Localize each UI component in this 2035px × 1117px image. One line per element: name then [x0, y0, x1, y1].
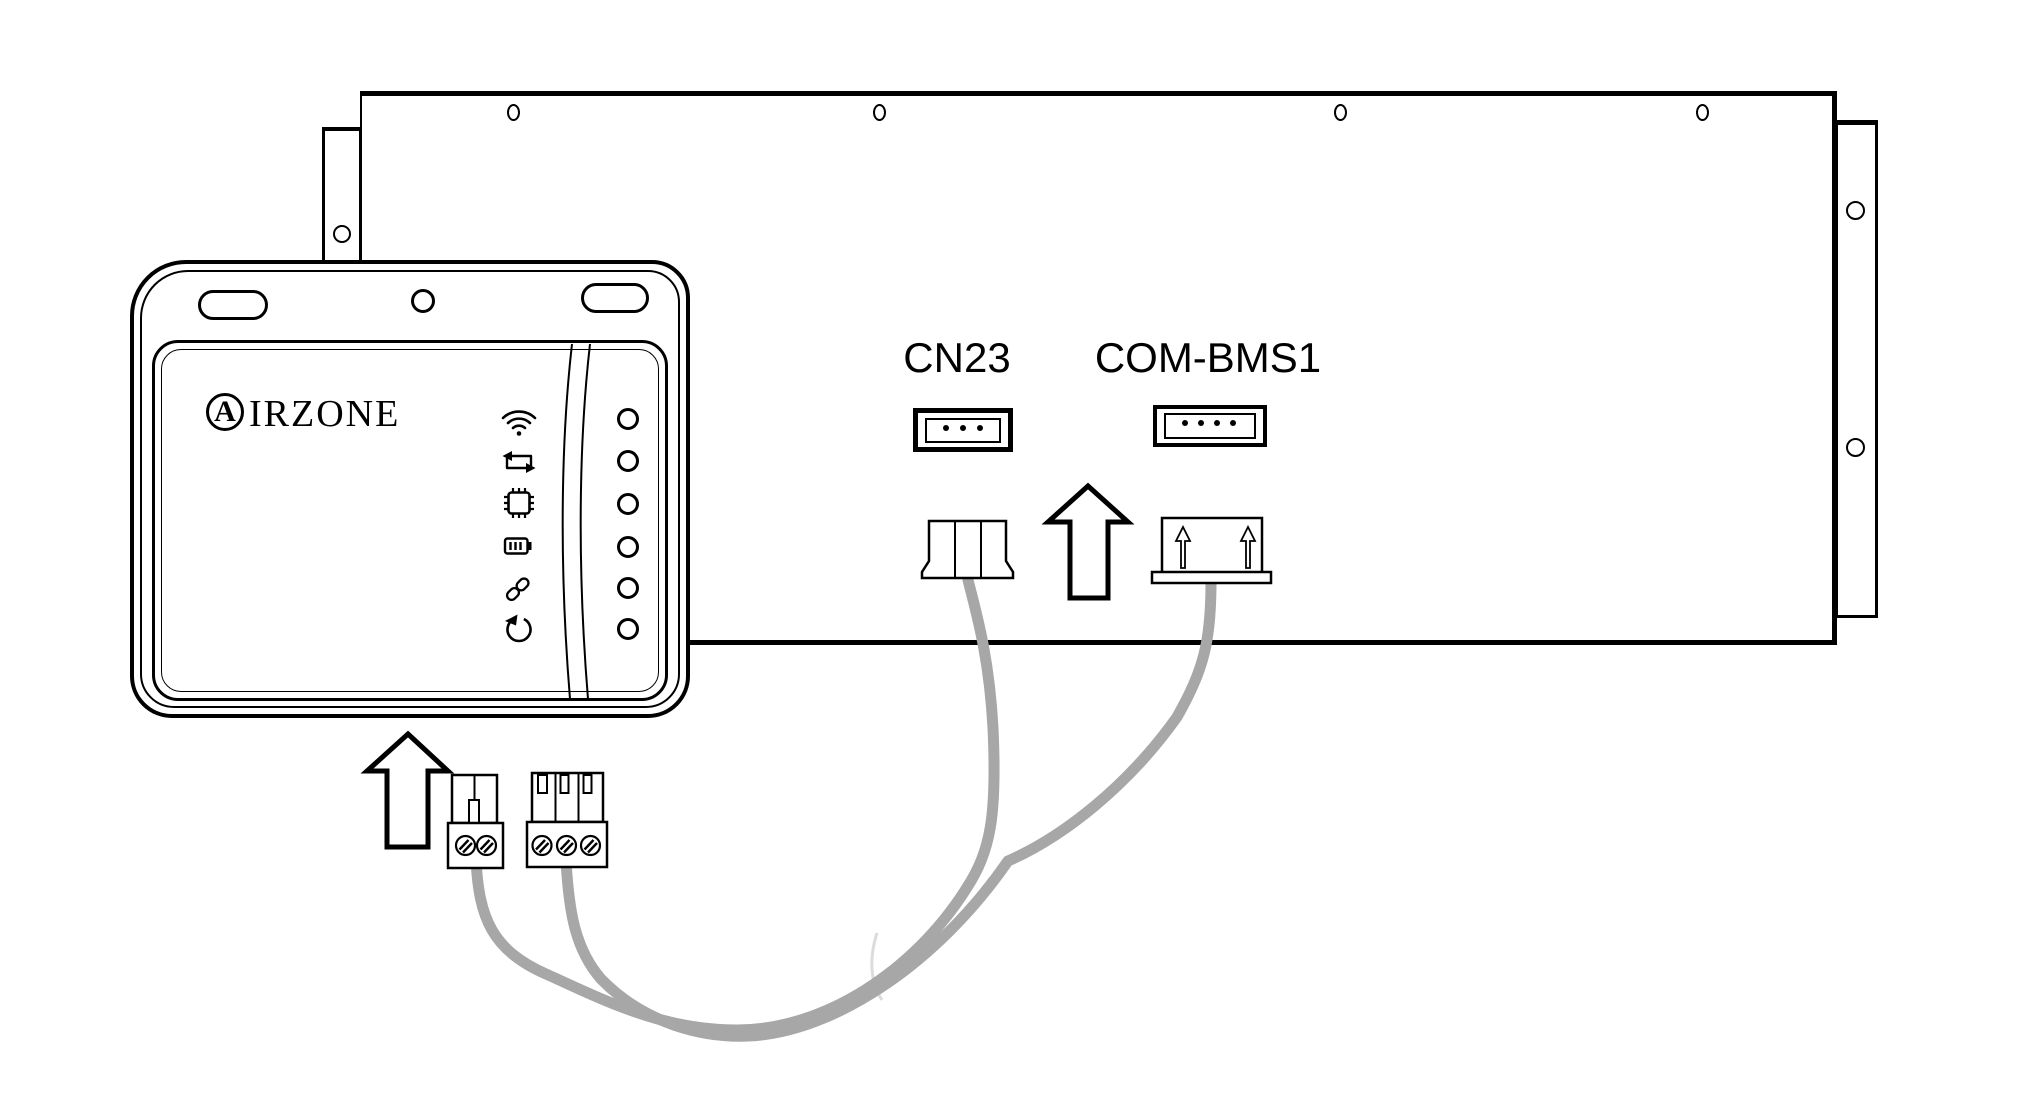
left-flange-hole — [333, 225, 351, 243]
terminal-block-2pin — [448, 775, 503, 868]
airzone-logo-text: IRZONE — [249, 394, 400, 434]
socket-pin-dot — [960, 425, 966, 431]
socket-pin-dot — [977, 425, 983, 431]
socket-pin-dot — [1182, 420, 1188, 426]
airzone-logo-circle-a: A — [206, 393, 244, 431]
screw-icon — [557, 836, 576, 855]
screw-icon — [581, 836, 600, 855]
right-flange-hole — [1846, 201, 1865, 220]
status-led — [617, 536, 639, 558]
panel-top-mounting-hole — [1334, 104, 1347, 121]
device-mounting-hole-center — [411, 289, 435, 313]
status-led — [617, 408, 639, 430]
wiring-diagram-page: { "diagram_type": "installation-wiring-d… — [0, 0, 2035, 1117]
screw-icon — [533, 836, 552, 855]
panel-top-mounting-hole — [873, 104, 886, 121]
label-cn23: CN23 — [880, 336, 1034, 380]
status-led — [617, 450, 639, 472]
panel-top-mounting-hole — [1696, 104, 1709, 121]
panel-right-flange — [1835, 120, 1878, 618]
terminal-block-3pin — [527, 773, 607, 867]
socket-pin-dot — [1230, 420, 1236, 426]
socket-pin-dot — [1198, 420, 1204, 426]
cable-highlight — [872, 933, 882, 1000]
insert-arrow-up-left — [367, 734, 448, 847]
label-com-bms1: COM-BMS1 — [1082, 336, 1334, 380]
screw-icon — [477, 836, 496, 855]
socket-pin-dot — [1214, 420, 1220, 426]
screw-icon — [456, 836, 475, 855]
panel-top-mounting-hole — [507, 104, 520, 121]
device-mounting-slot-left — [198, 290, 268, 320]
logo-initial: A — [214, 397, 236, 427]
socket-pin-dot — [943, 425, 949, 431]
status-led — [617, 618, 639, 640]
status-led — [617, 577, 639, 599]
device-mounting-slot-right — [581, 283, 649, 313]
right-flange-hole — [1846, 438, 1865, 457]
status-led — [617, 493, 639, 515]
com-bms1-socket-inner — [1164, 413, 1256, 439]
